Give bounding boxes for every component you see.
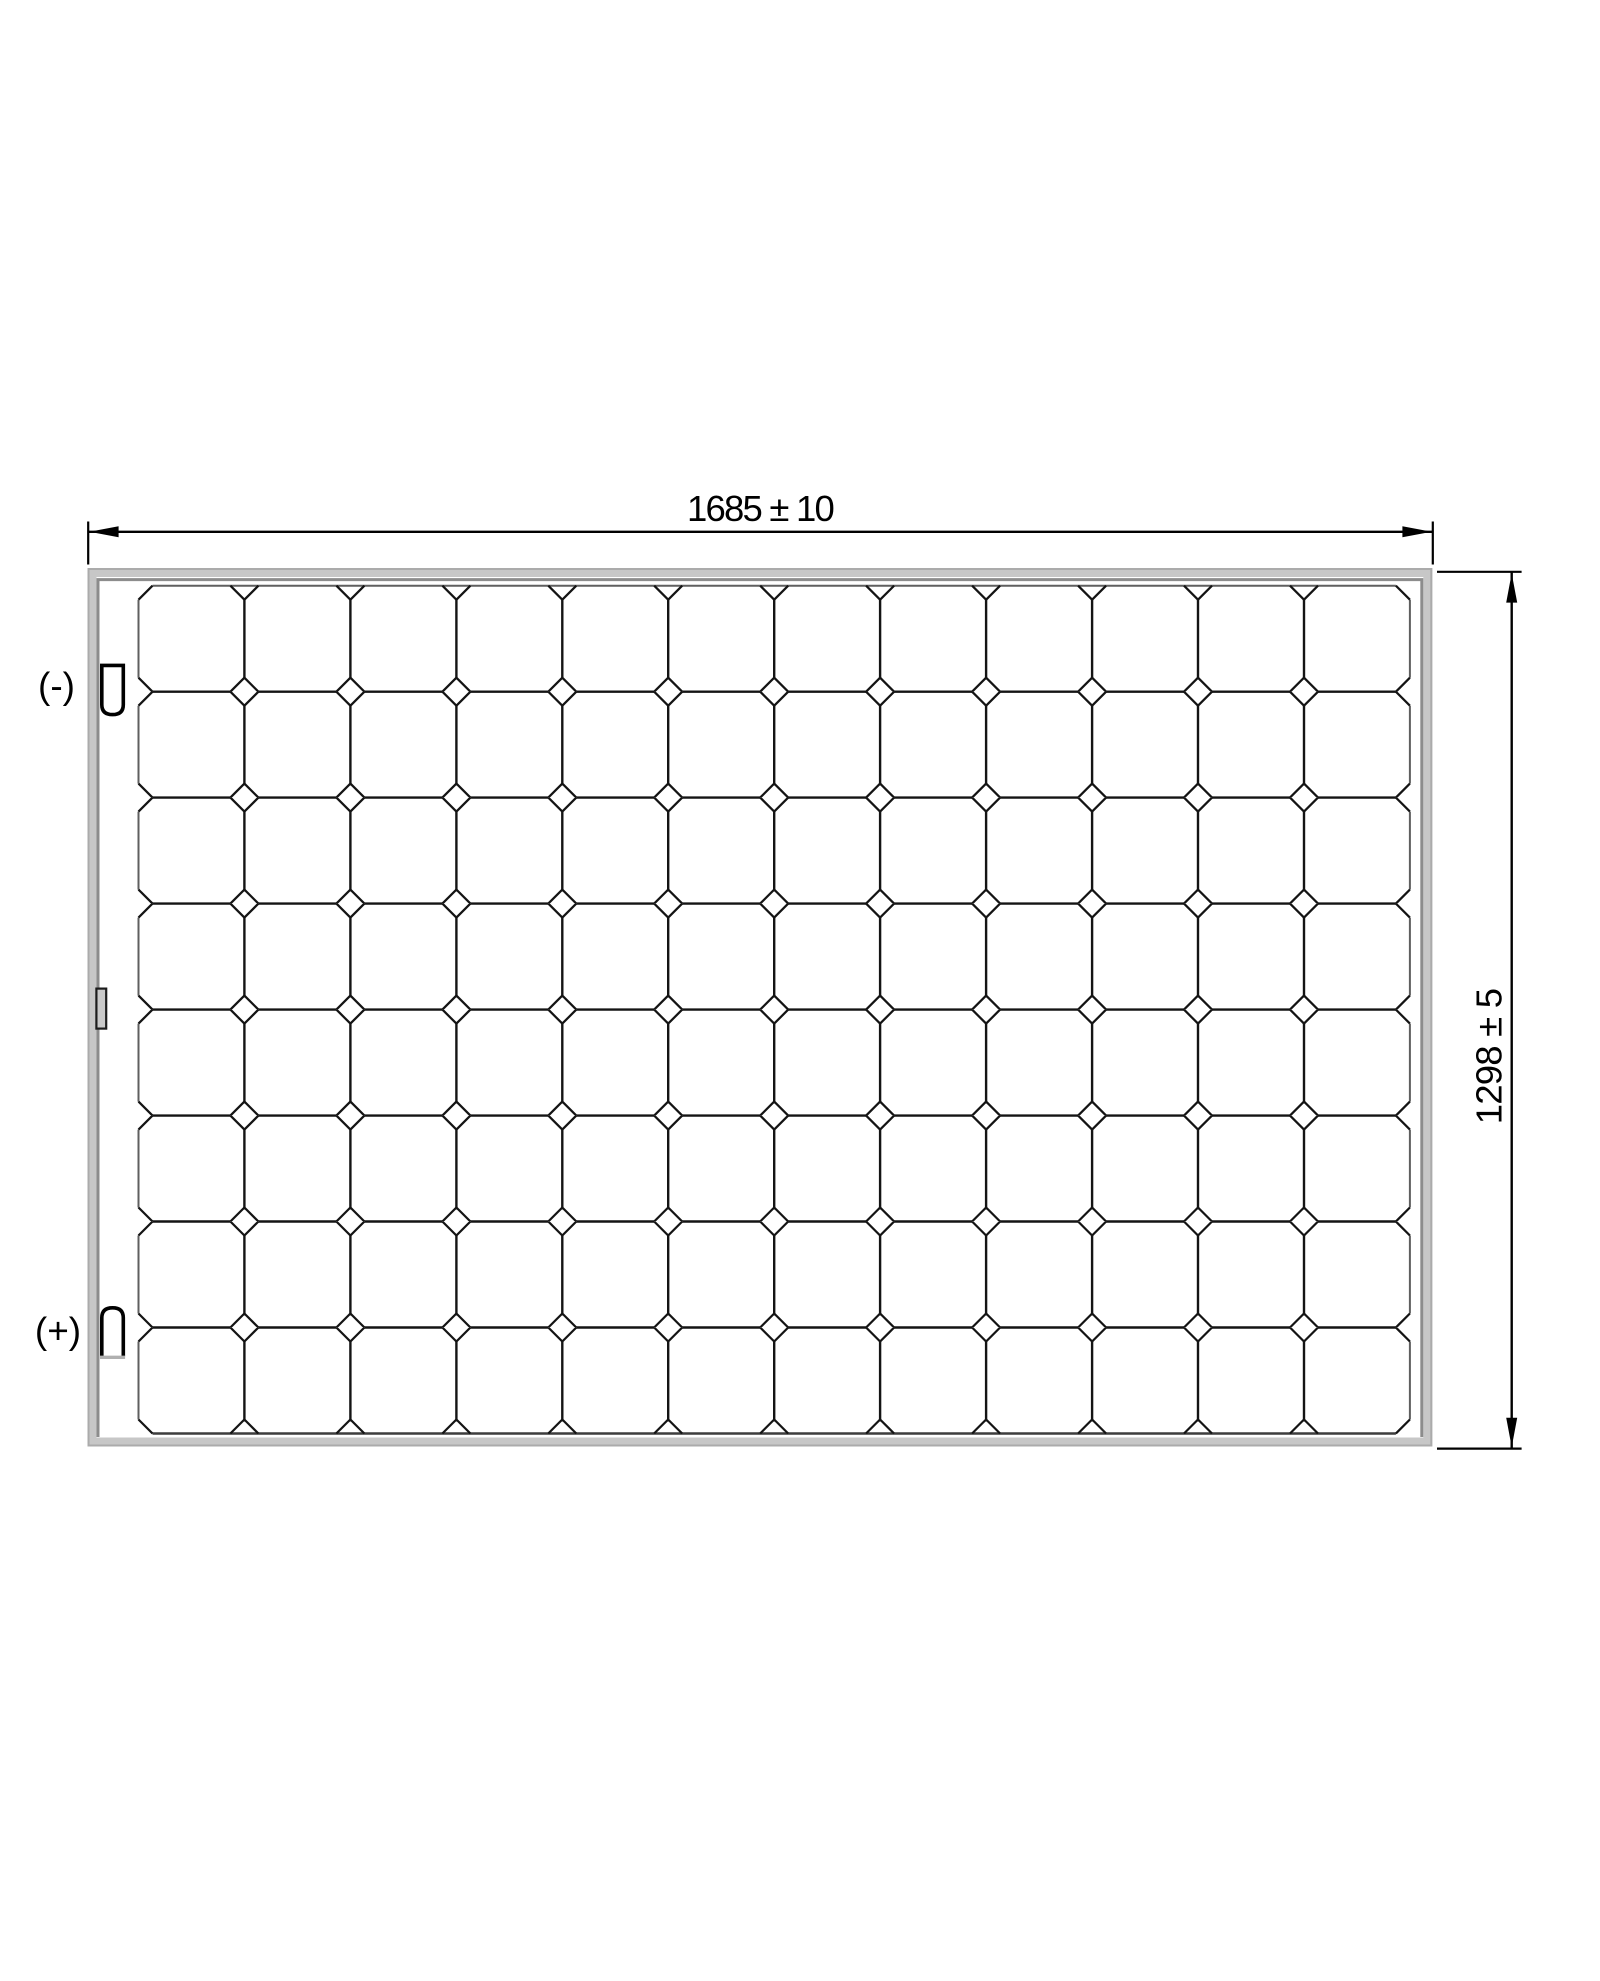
svg-text:1685 ± 10: 1685 ± 10 — [687, 488, 833, 529]
svg-text:(-): (-) — [38, 665, 75, 706]
svg-text:(+): (+) — [35, 1310, 81, 1351]
svg-text:1298 ± 5: 1298 ± 5 — [1469, 989, 1510, 1124]
